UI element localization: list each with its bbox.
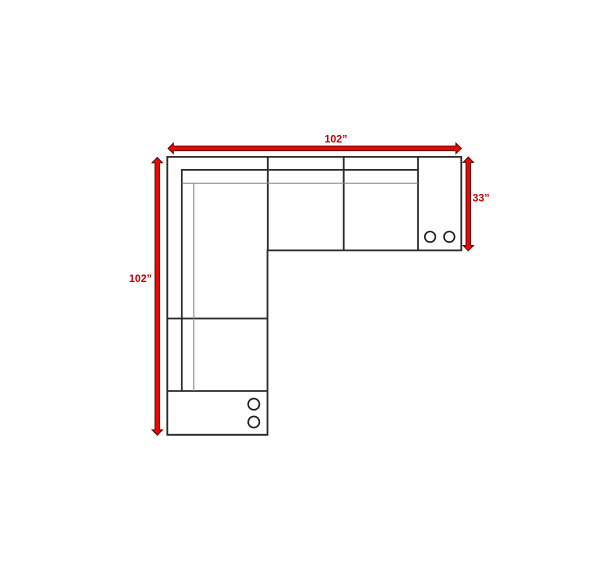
svg-text:102”: 102” — [129, 273, 152, 285]
svg-text:33”: 33” — [473, 193, 490, 205]
svg-text:102”: 102” — [325, 133, 348, 145]
